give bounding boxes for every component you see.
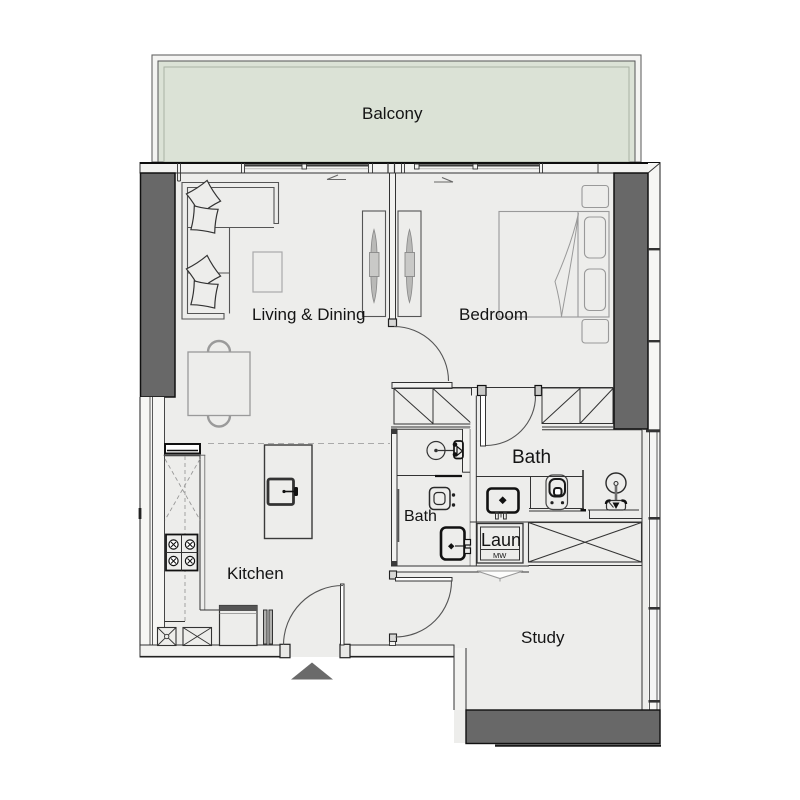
svg-text:Bath: Bath: [512, 447, 551, 468]
svg-text:Study: Study: [521, 628, 565, 647]
svg-text:Laun: Laun: [481, 530, 521, 550]
svg-text:Kitchen: Kitchen: [227, 564, 284, 583]
svg-text:Bath: Bath: [404, 508, 437, 525]
svg-text:Bedroom: Bedroom: [459, 305, 528, 324]
svg-text:Balcony: Balcony: [362, 104, 423, 123]
svg-text:MW: MW: [493, 551, 507, 560]
svg-text:Living & Dining: Living & Dining: [252, 305, 365, 324]
